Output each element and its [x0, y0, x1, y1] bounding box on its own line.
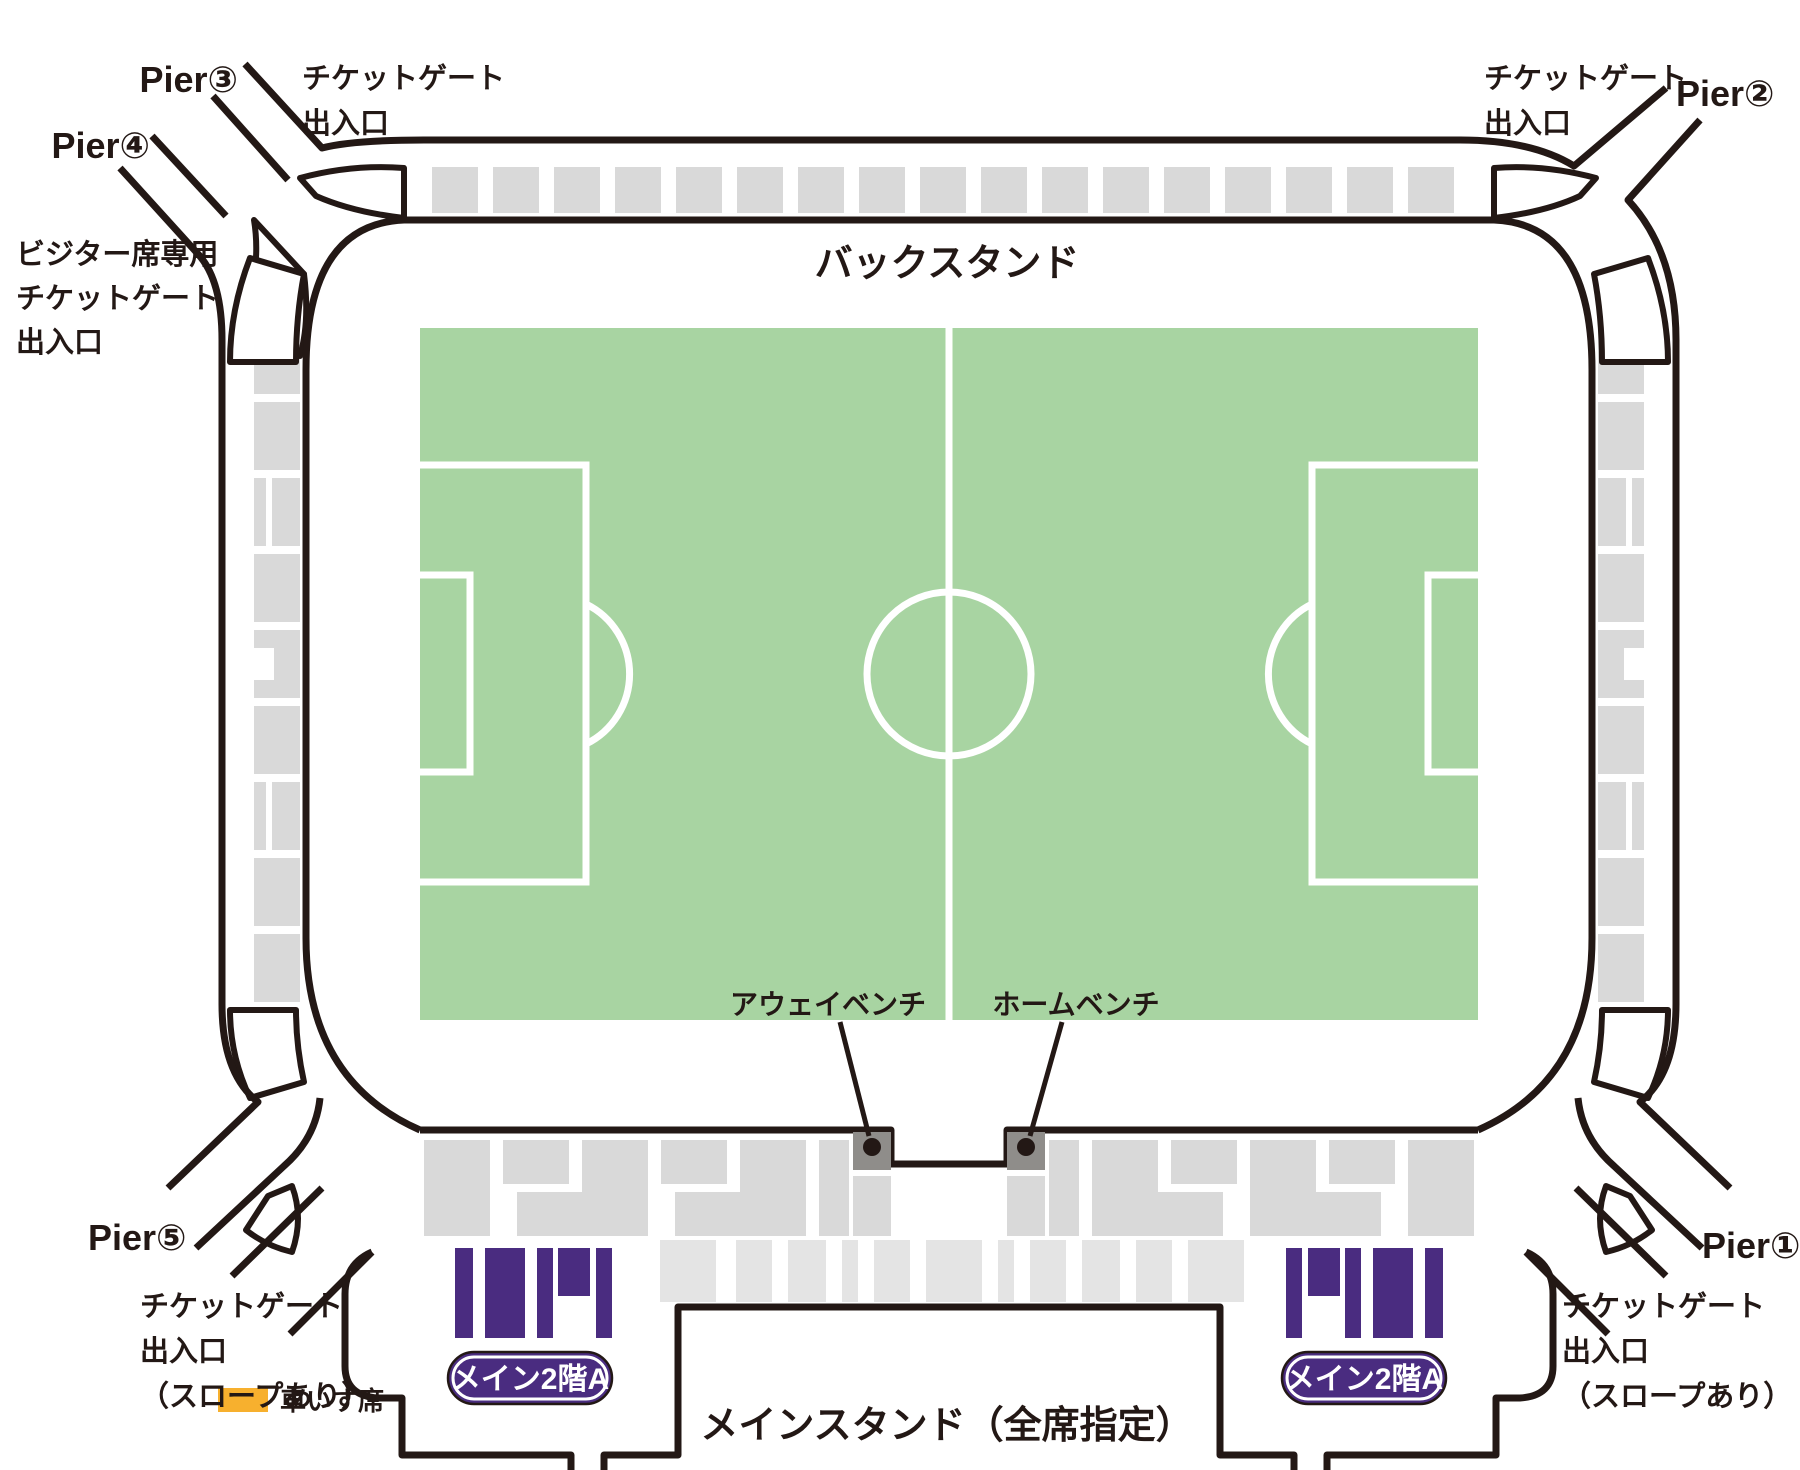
corner-piece-top-left-a [300, 167, 404, 218]
seat-block [432, 167, 478, 213]
seat-block [661, 1140, 727, 1184]
stadium-seating-map: メイン2階A メイン2階A 車いす席 バックスタンド メインスタンド（全席指定）… [0, 0, 1800, 1470]
gate-br-line1: チケットゲート [1562, 1290, 1765, 1323]
seat-block [1042, 167, 1088, 213]
seat-block [272, 478, 300, 546]
gate-visitor-line1: ビジター席専用 [16, 237, 218, 271]
gate-bl-line2: 出入口 [140, 1335, 227, 1368]
seat-block [1157, 1192, 1223, 1236]
team-benches [840, 1022, 1062, 1170]
seat-block [254, 648, 274, 680]
seat-block [1598, 706, 1644, 774]
gate-tl-line2: 出入口 [302, 107, 389, 140]
seat-block [1225, 167, 1271, 213]
seat-block [503, 1140, 569, 1184]
main-2f-a-right-blocks [1286, 1248, 1443, 1338]
seat-block [675, 1192, 741, 1236]
seat-block [736, 1240, 772, 1302]
inner-corner-arc-top-right [1494, 220, 1592, 370]
seat-block [493, 167, 539, 213]
seat-block [1598, 478, 1626, 546]
back-stand-label: バックスタンド [815, 243, 1080, 285]
seat-block [920, 167, 966, 213]
away-bench-label: アウェイベンチ [730, 989, 926, 1020]
seat-block [1164, 167, 1210, 213]
pier4-label: Pier④ [51, 125, 150, 166]
gate-tr-line1: チケットゲート [1484, 62, 1687, 95]
main-stand-front-wall [420, 1130, 1478, 1164]
seat-block [554, 167, 600, 213]
seat-block [272, 782, 300, 850]
seat-block [1103, 167, 1149, 213]
seat-block [859, 167, 905, 213]
seat-block [788, 1240, 826, 1302]
seat-block [517, 1192, 583, 1236]
seat-block [1624, 648, 1644, 680]
seat-block [254, 858, 300, 926]
inner-corner-arc-top-left [306, 220, 404, 370]
main-2f-a-left-label: メイン2階A [451, 1363, 609, 1396]
seat-block [1598, 858, 1644, 926]
seat-block [254, 402, 300, 470]
seat-block [737, 167, 783, 213]
seat-block [1329, 1140, 1395, 1184]
seat-block [676, 167, 722, 213]
seat-block [926, 1240, 982, 1302]
main-stand-seat-blocks [424, 1140, 1474, 1236]
main-stand-label: メインスタンド（全席指定） [700, 1404, 1193, 1447]
seat-block [660, 1240, 716, 1302]
main-2f-a-left-badge: メイン2階A [448, 1352, 612, 1404]
gate-bl-line3: （スロープあり） [140, 1380, 370, 1413]
pitch [420, 328, 1478, 1020]
seat-block [424, 1140, 490, 1236]
gate-tr-line2: 出入口 [1484, 107, 1571, 140]
home-bench-leader-line [1030, 1022, 1062, 1136]
corridor-pier3-wall [213, 96, 288, 180]
main-2f-a-right-label: メイン2階A [1285, 1363, 1443, 1396]
east-side-seat-blocks [1598, 326, 1644, 1002]
seat-block [1598, 934, 1644, 1002]
corner-piece-top-right-a [1494, 167, 1596, 218]
seat-block [1286, 167, 1332, 213]
gate-bl-line1: チケットゲート [140, 1290, 343, 1323]
away-bench-leader-line [840, 1022, 869, 1136]
seat-block [740, 1140, 806, 1236]
corner-piece-top-left-c [230, 258, 304, 362]
home-bench-dot [1017, 1138, 1035, 1156]
away-bench-dot [863, 1138, 881, 1156]
pier1-label: Pier① [1702, 1225, 1800, 1266]
seat-block [1632, 782, 1644, 850]
seat-block [1082, 1240, 1120, 1302]
seat-block [998, 1240, 1014, 1302]
seat-block [254, 782, 266, 850]
seat-block [1598, 782, 1626, 850]
back-stand-seat-blocks [432, 167, 1454, 213]
seat-block [615, 167, 661, 213]
seat-block [1188, 1240, 1244, 1302]
seat-block [1136, 1240, 1172, 1302]
gate-visitor-line2: チケットゲート [16, 282, 219, 315]
seat-block [1598, 402, 1644, 470]
seat-block [1049, 1140, 1079, 1236]
seat-block [1408, 1140, 1474, 1236]
seat-block [819, 1140, 849, 1236]
main-2f-a-left-blocks [455, 1248, 612, 1338]
seat-block [1632, 478, 1644, 546]
corridor-pier4-wall [152, 136, 226, 216]
seat-block [798, 167, 844, 213]
gate-br-line2: 出入口 [1562, 1335, 1649, 1368]
home-bench-label: ホームベンチ [992, 989, 1159, 1020]
seat-block [254, 554, 300, 622]
seat-block [254, 706, 300, 774]
main-2f-a-right-badge: メイン2階A [1282, 1352, 1446, 1404]
gate-visitor-line3: 出入口 [16, 326, 103, 359]
gate-tl-line1: チケットゲート [302, 62, 505, 95]
seat-block [1007, 1176, 1045, 1236]
seat-block [874, 1240, 910, 1302]
seat-block [1250, 1140, 1316, 1236]
seat-block [1315, 1192, 1381, 1236]
seat-block [1408, 167, 1454, 213]
seat-block [582, 1140, 648, 1236]
seat-block [1347, 167, 1393, 213]
seat-block [1598, 554, 1644, 622]
seat-block [853, 1176, 891, 1236]
seat-block [1030, 1240, 1066, 1302]
pier3-label: Pier③ [139, 59, 238, 100]
main-stand-lower-seat-blocks [660, 1240, 1244, 1302]
seat-block [254, 478, 266, 546]
seat-block [1092, 1140, 1158, 1236]
seat-block [981, 167, 1027, 213]
pier5-label: Pier⑤ [88, 1217, 187, 1258]
seat-block [1171, 1140, 1237, 1184]
gate-br-line3: （スロープあり） [1562, 1380, 1792, 1413]
seat-block [254, 934, 300, 1002]
stadium-map-canvas: メイン2階A メイン2階A 車いす席 バックスタンド メインスタンド（全席指定）… [0, 0, 1800, 1470]
corner-piece-top-right-b [1594, 258, 1668, 362]
pier2-label: Pier② [1676, 73, 1775, 114]
west-side-seat-blocks [254, 326, 300, 1002]
seat-block [842, 1240, 858, 1302]
